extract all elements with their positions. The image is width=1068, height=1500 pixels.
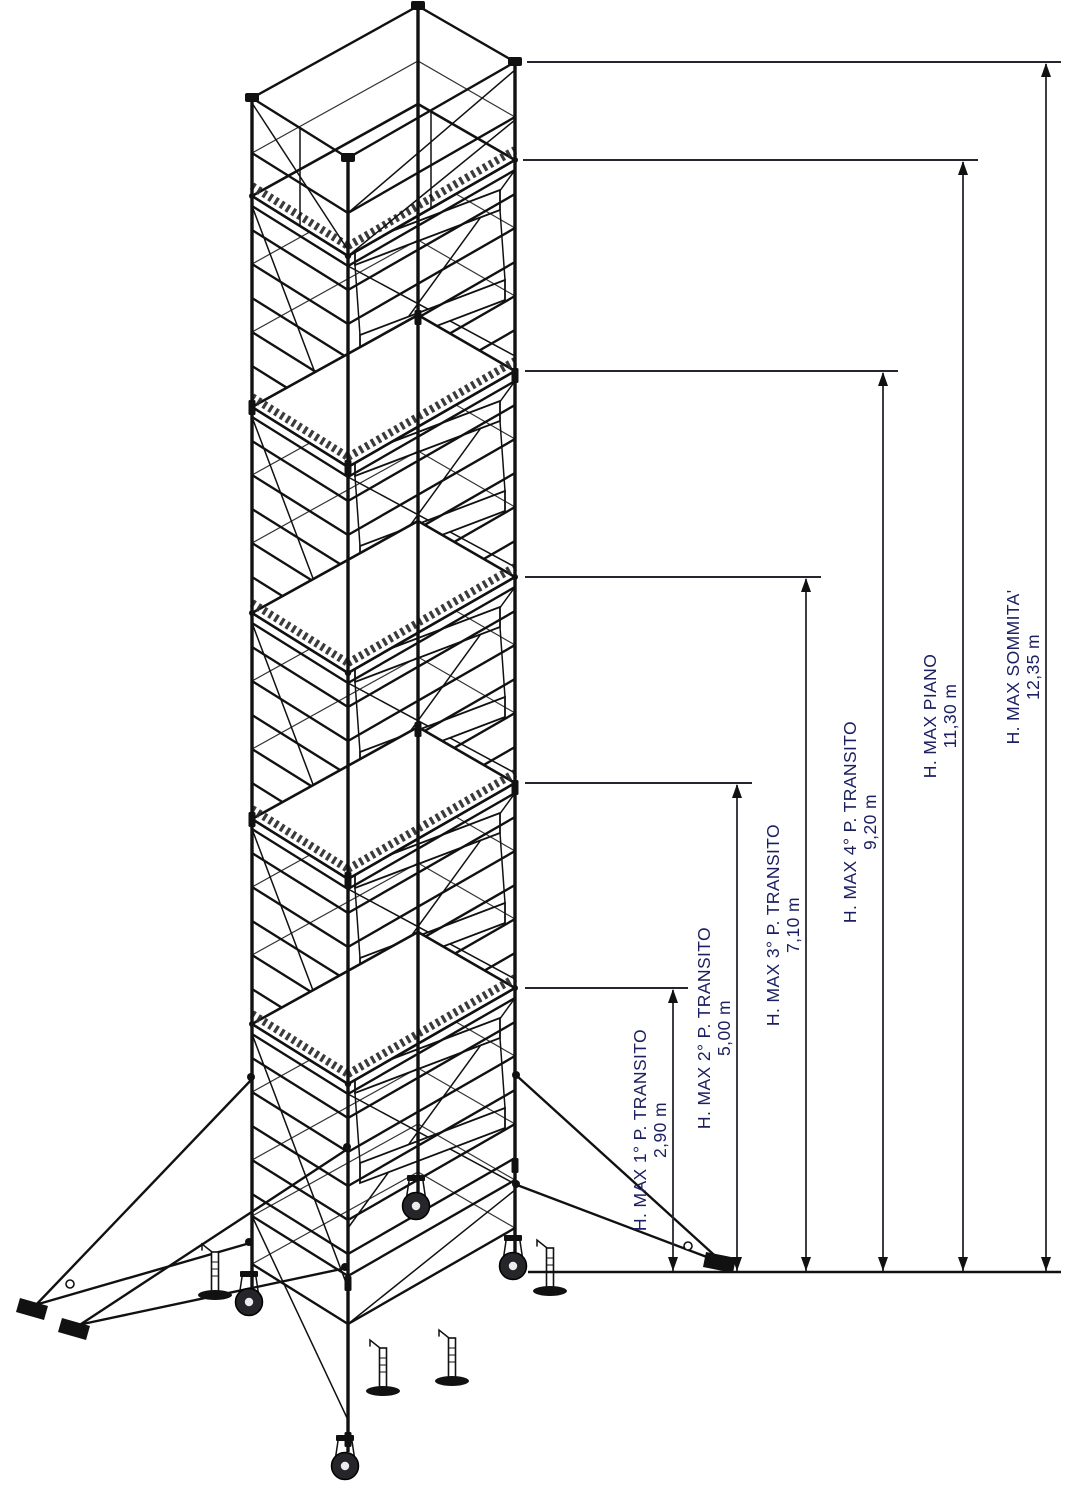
dimension-label: H. MAX SOMMITA' [1003, 590, 1023, 745]
dimension-label: H. MAX 3° P. TRANSITO [763, 824, 783, 1026]
stabilizer-outriggers [16, 1071, 736, 1340]
dimension-value: 11,30 m [940, 684, 960, 749]
dimension-value: 5,00 m [714, 1000, 734, 1056]
dimension-value: 2,90 m [650, 1102, 670, 1158]
scaffold-tower [16, 1, 736, 1480]
casters [236, 1175, 527, 1480]
dimension-label: H. MAX 2° P. TRANSITO [694, 927, 714, 1129]
dimension-sommita: H. MAX SOMMITA' 12,35 m [527, 62, 1061, 1271]
scaffold-tower-diagram: H. MAX 1° P. TRANSITO 2,90 m H. MAX 2° P… [0, 0, 1068, 1500]
dimension-value: 7,10 m [783, 897, 803, 953]
dimension-label: H. MAX 4° P. TRANSITO [840, 721, 860, 923]
dimension-transito-1: H. MAX 1° P. TRANSITO 2,90 m [525, 988, 688, 1271]
dimension-value: 9,20 m [860, 794, 880, 850]
dimension-label: H. MAX 1° P. TRANSITO [630, 1029, 650, 1231]
dimension-label: H. MAX PIANO [920, 654, 940, 778]
technical-drawing-page: H. MAX 1° P. TRANSITO 2,90 m H. MAX 2° P… [0, 0, 1068, 1500]
dimension-piano: H. MAX PIANO 11,30 m [523, 160, 978, 1271]
dimension-transito-4: H. MAX 4° P. TRANSITO 9,20 m [525, 371, 898, 1271]
dimension-value: 12,35 m [1023, 634, 1043, 700]
tower-modules [249, 104, 518, 1288]
dimension-system: H. MAX 1° P. TRANSITO 2,90 m H. MAX 2° P… [523, 62, 1061, 1272]
